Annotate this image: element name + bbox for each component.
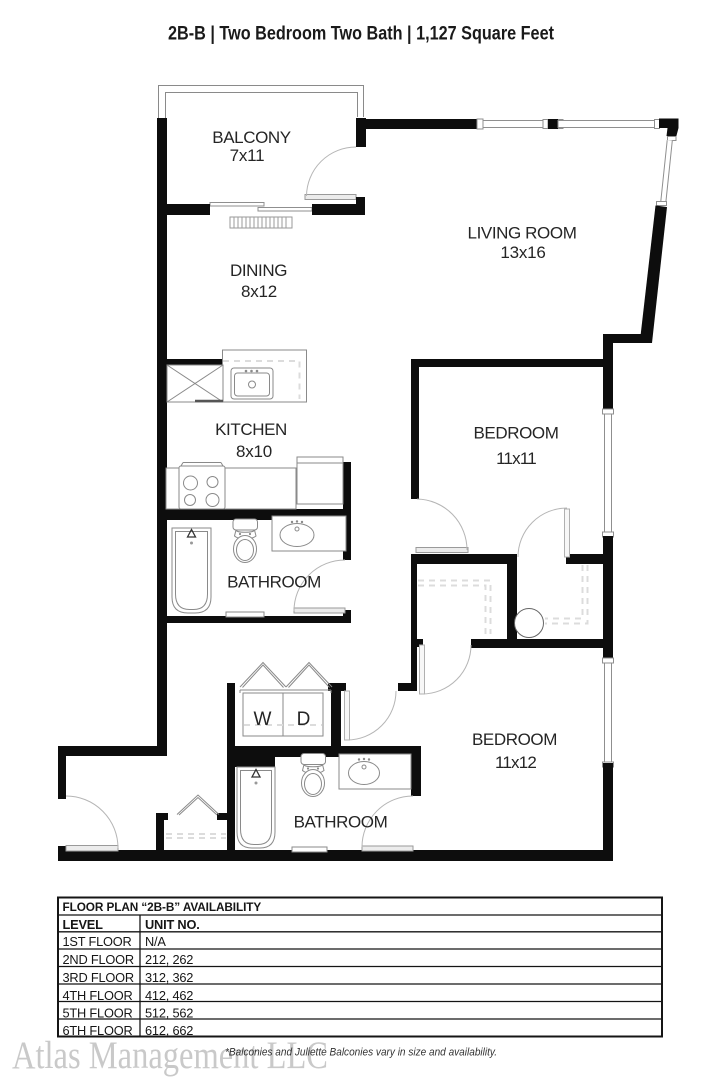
svg-text:N/A: N/A [145,934,166,949]
svg-text:W: W [254,709,272,730]
svg-text:BATHROOM: BATHROOM [294,813,388,832]
svg-text:DINING: DINING [230,261,287,280]
svg-text:412, 462: 412, 462 [145,988,193,1003]
svg-text:8x10: 8x10 [236,442,272,461]
svg-text:512, 562: 512, 562 [145,1006,193,1021]
svg-text:D: D [297,709,311,730]
svg-text:612, 662: 612, 662 [145,1023,193,1038]
svg-text:KITCHEN: KITCHEN [215,420,287,439]
svg-text:5TH FLOOR: 5TH FLOOR [63,1006,133,1021]
svg-text:4TH FLOOR: 4TH FLOOR [63,988,133,1003]
svg-text:11x11: 11x11 [496,449,536,468]
svg-text:7x11: 7x11 [230,146,265,165]
svg-text:BATHROOM: BATHROOM [227,573,321,592]
svg-text:BEDROOM: BEDROOM [473,424,558,443]
svg-text:1ST FLOOR: 1ST FLOOR [63,934,132,949]
svg-text:6TH FLOOR: 6TH FLOOR [63,1023,133,1038]
svg-text:BEDROOM: BEDROOM [472,730,557,749]
svg-text:2B-B | Two Bedroom Two Bath |: 2B-B | Two Bedroom Two Bath | 1,127 Squa… [168,23,554,45]
svg-text:BALCONY: BALCONY [212,128,291,147]
svg-text:LEVEL: LEVEL [63,917,104,932]
svg-text:3RD FLOOR: 3RD FLOOR [63,970,134,985]
svg-text:LIVING ROOM: LIVING ROOM [468,224,577,243]
svg-text:212, 262: 212, 262 [145,952,193,967]
svg-text:312, 362: 312, 362 [145,970,193,985]
svg-text:FLOOR PLAN “2B-B” AVAILABILITY: FLOOR PLAN “2B-B” AVAILABILITY [63,900,262,914]
svg-text:2ND FLOOR: 2ND FLOOR [63,952,134,967]
svg-text:8x12: 8x12 [241,282,277,301]
svg-text:13x16: 13x16 [500,243,545,262]
svg-text:11x12: 11x12 [495,753,536,772]
svg-text:*Balconies and Juliette Balcon: *Balconies and Juliette Balconies vary i… [225,1047,497,1059]
svg-text:UNIT NO.: UNIT NO. [145,917,200,932]
